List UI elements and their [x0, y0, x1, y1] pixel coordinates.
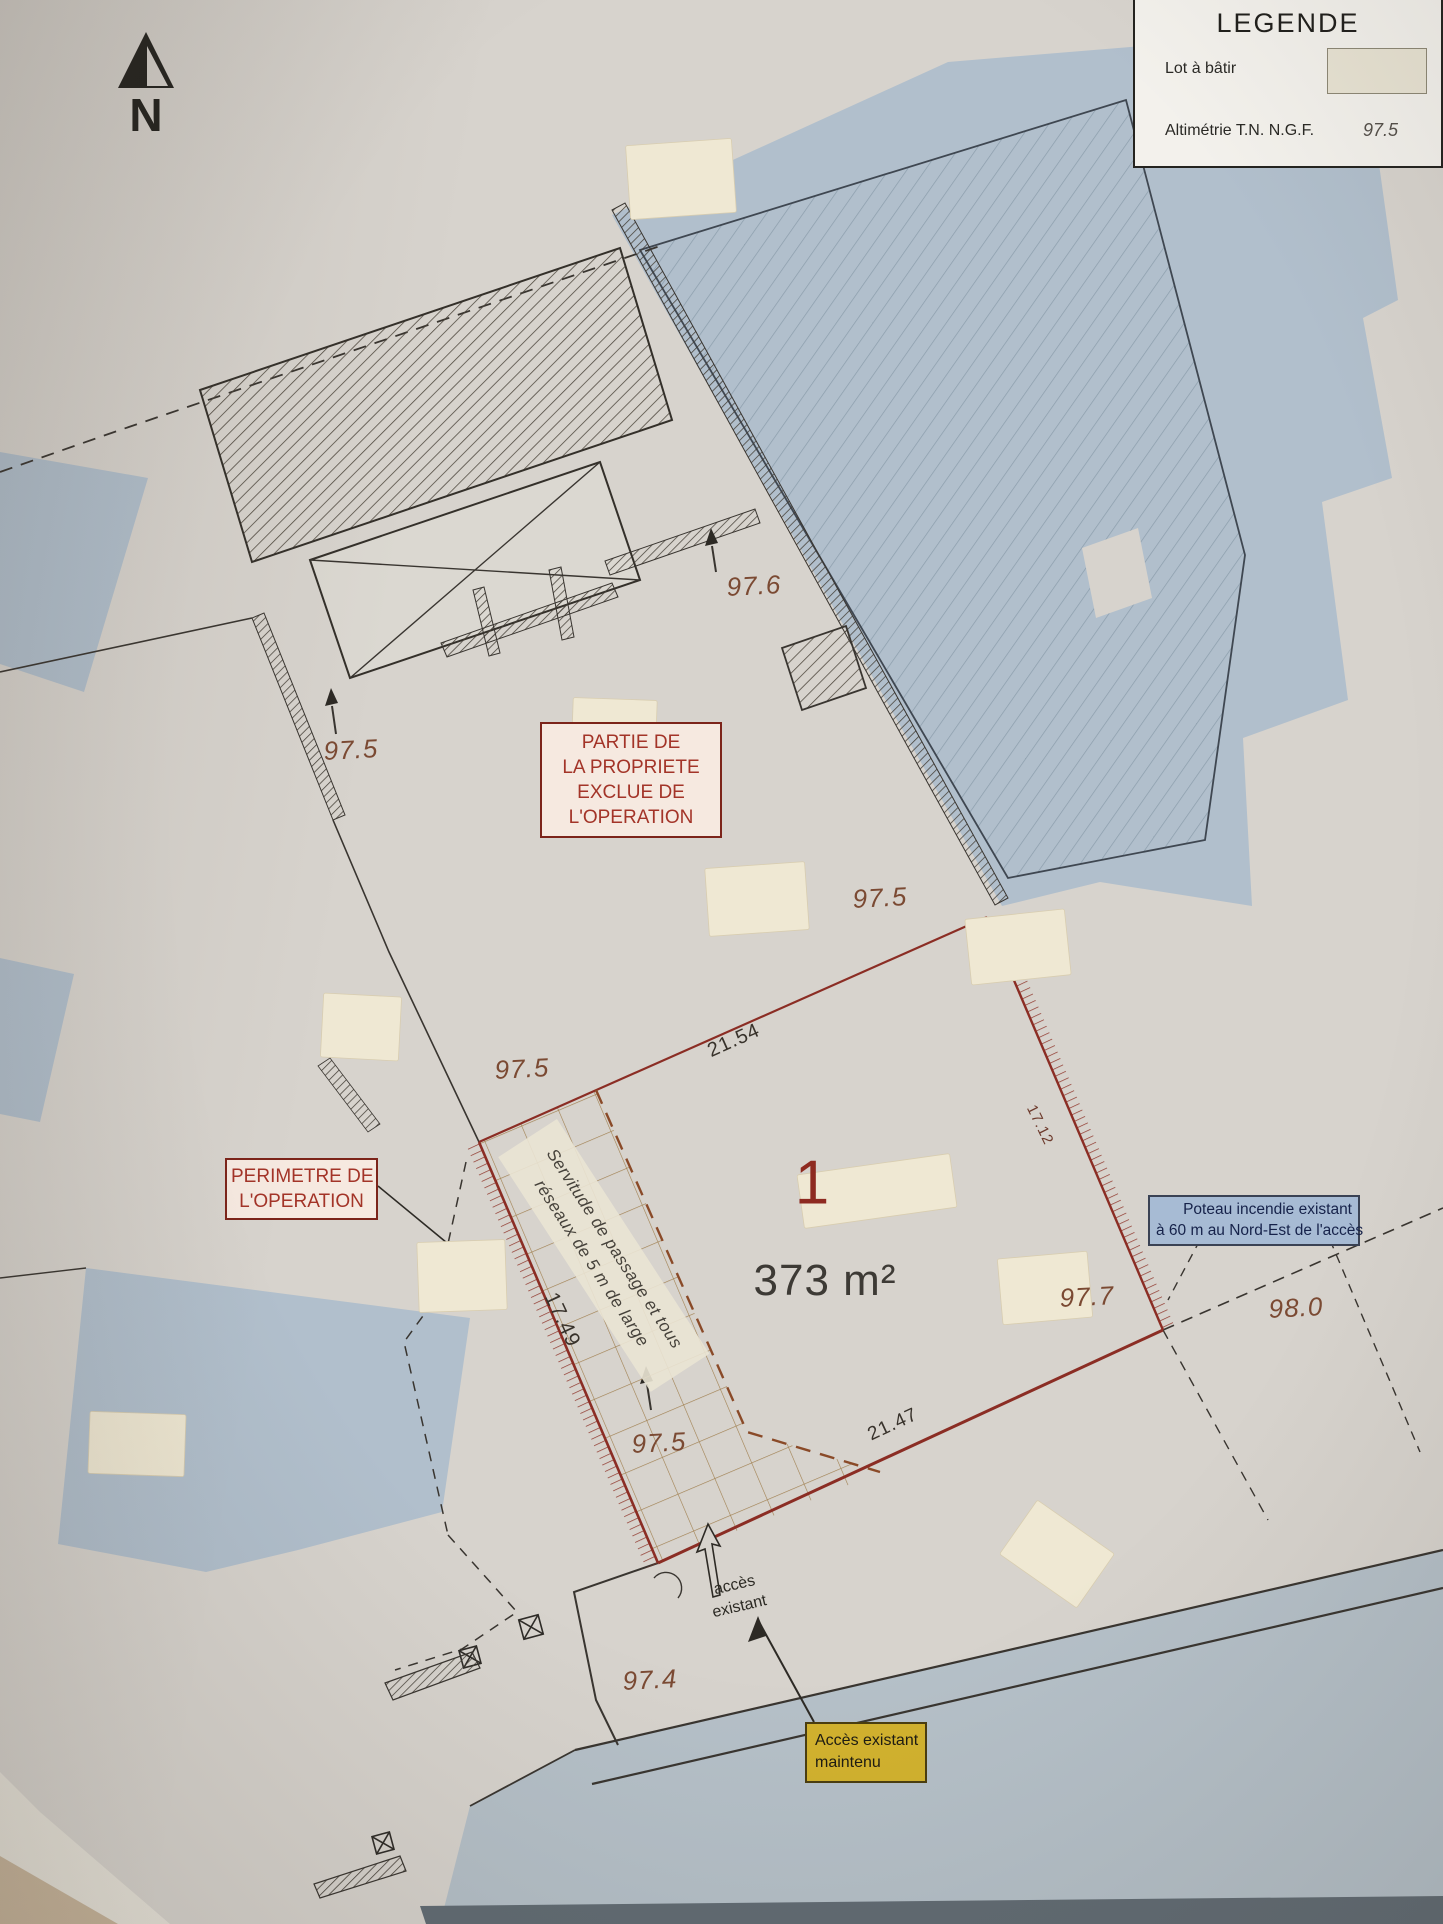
tape-patch: [1000, 1500, 1115, 1608]
operation-perimeter-callout: PERIMETRE DE L'OPERATION: [225, 1158, 378, 1220]
callout-line: Poteau incendie existant: [1156, 1199, 1352, 1220]
excluded-property-callout: PARTIE DE LA PROPRIETE EXCLUE DE L'OPERA…: [540, 722, 722, 838]
tape-patch: [320, 993, 401, 1061]
callout-line: à 60 m au Nord-Est de l'accès: [1156, 1220, 1352, 1241]
gate-swing-icon: [654, 1572, 682, 1598]
tape-patch: [626, 138, 737, 219]
north-label: N: [129, 88, 162, 142]
legend-box: LEGENDE Lot à bâtir Altimétrie T.N. N.G.…: [1133, 0, 1443, 168]
callout-line: L'OPERATION: [546, 805, 716, 830]
lot-number: 1: [795, 1148, 829, 1219]
spot-elevation: 97.7: [1059, 1280, 1115, 1314]
callout-line: LA PROPRIETE: [546, 755, 716, 780]
legend-item-lot-label: Lot à bâtir: [1165, 60, 1236, 78]
spot-elevation: 98.0: [1268, 1291, 1324, 1325]
site-plan-page: N LEGENDE Lot à bâtir Altimétrie T.N. N.…: [0, 0, 1443, 1924]
callout-line: PARTIE DE: [546, 730, 716, 755]
spot-elevation: 97.6: [726, 569, 782, 603]
lot-area: 373 m²: [754, 1256, 897, 1306]
tape-patch: [965, 909, 1071, 985]
callout-line: Accès existant: [815, 1730, 917, 1752]
callout-line: L'OPERATION: [231, 1189, 372, 1214]
existing-access-callout: Accès existant maintenu: [805, 1722, 927, 1783]
fire-hydrant-callout: Poteau incendie existant à 60 m au Nord-…: [1148, 1195, 1360, 1246]
spot-elevation: 97.5: [494, 1052, 550, 1086]
callout-line: maintenu: [815, 1752, 917, 1774]
legend-lot-swatch: [1327, 48, 1427, 94]
north-arrow-icon: [118, 32, 174, 88]
callout-line: PERIMETRE DE: [231, 1164, 372, 1189]
tape-patch: [417, 1239, 507, 1312]
spot-elevation: 97.5: [631, 1426, 687, 1460]
spot-elevation: 97.5: [852, 881, 908, 915]
legend-title: LEGENDE: [1135, 8, 1441, 39]
tape-patch: [705, 862, 809, 937]
legend-altimetry-value: 97.5: [1363, 120, 1398, 141]
legend-item-altimetry-label: Altimétrie T.N. N.G.F.: [1165, 122, 1314, 140]
site-plan-drawing: [0, 0, 1443, 1924]
spot-elevation: 97.5: [323, 733, 379, 767]
spot-elevation: 97.4: [622, 1663, 678, 1697]
existing-buildings-layer: [0, 28, 1443, 1924]
callout-line: EXCLUE DE: [546, 780, 716, 805]
tape-patch: [88, 1411, 186, 1476]
